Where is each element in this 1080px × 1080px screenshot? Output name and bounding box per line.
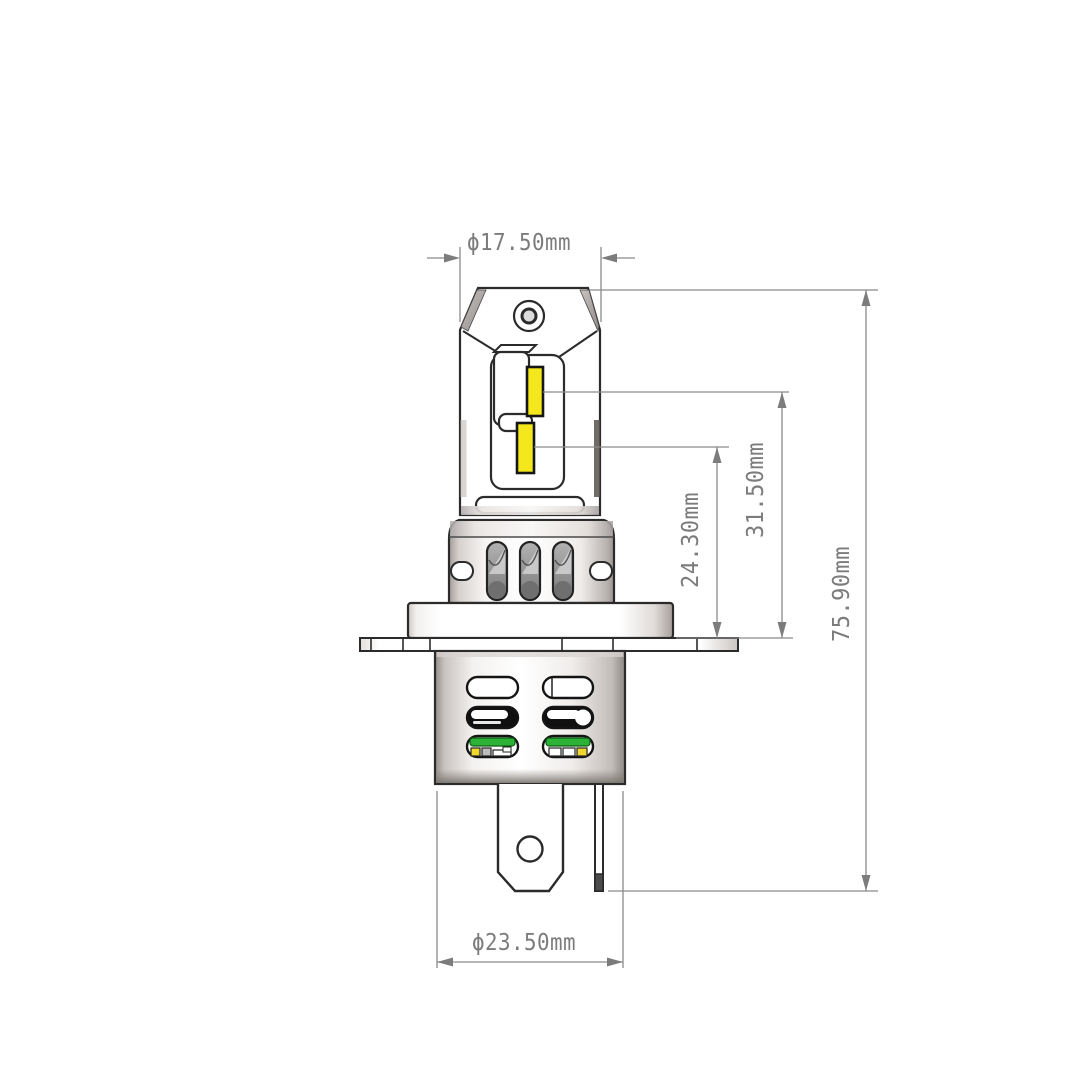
side-pin-tip xyxy=(595,874,603,891)
dim-label-lower-led-height: 24.30mm xyxy=(678,492,704,588)
dim-label-base-diameter: ϕ23.50mm xyxy=(472,930,576,956)
arrow-down xyxy=(862,875,871,891)
vent-slot-r1-right xyxy=(543,677,593,698)
led-chip-lower xyxy=(517,423,534,473)
connector-terminals xyxy=(498,784,603,891)
technical-drawing-page: ϕ17.50mm 75.90mm 31.50mm 24.30mm ϕ23.50m… xyxy=(0,0,1080,1080)
r3-right-pad-white2 xyxy=(563,748,575,756)
arrow-up xyxy=(713,447,722,463)
collar-rim-band xyxy=(450,521,613,537)
r3-right-pcb-green xyxy=(546,738,590,746)
collar-notch-right xyxy=(590,562,612,580)
heatsink-bottom-shade xyxy=(437,769,624,783)
mounting-flange xyxy=(360,603,738,651)
r3-right-pad-yellow xyxy=(577,748,587,756)
heatsink-body xyxy=(435,651,625,784)
arrow-up xyxy=(778,392,787,408)
side-shade-left xyxy=(461,420,467,497)
heatsink-top-shade xyxy=(437,652,624,657)
dim-label-upper-led-height: 31.50mm xyxy=(743,442,769,538)
arrow-down xyxy=(778,622,787,638)
flange-strip xyxy=(360,638,738,651)
bulb-dimension-drawing: ϕ17.50mm 75.90mm 31.50mm 24.30mm ϕ23.50m… xyxy=(0,0,1080,1080)
flange-plate xyxy=(408,603,673,638)
side-shade-right xyxy=(594,420,600,497)
r2-right-end xyxy=(575,710,591,726)
vent-slot-r1-left xyxy=(467,677,518,698)
collar-vent-slots xyxy=(487,542,573,600)
slot-bottom-cap xyxy=(488,581,506,599)
collar-notch-left xyxy=(451,562,473,580)
r3-left-pad-white2 xyxy=(503,747,511,752)
arrow-right xyxy=(607,958,623,967)
r2-left-sliver xyxy=(473,721,501,724)
arrow-left xyxy=(601,254,617,263)
r3-left-pcb-green xyxy=(470,738,515,746)
dim-label-cap-diameter: ϕ17.50mm xyxy=(467,230,571,256)
arrow-up xyxy=(862,290,871,306)
slot-bottom-cap xyxy=(554,581,572,599)
bulb-collar xyxy=(449,520,614,603)
housing-transition-band xyxy=(461,506,599,515)
heatsink-outline xyxy=(435,651,625,784)
slot-bottom-cap xyxy=(521,581,539,599)
terminal-hole xyxy=(518,837,543,862)
r3-right-pad-white xyxy=(549,748,561,756)
bulb-upper-housing xyxy=(460,288,600,515)
screw-hole-inner xyxy=(522,309,536,323)
arrow-left xyxy=(437,958,453,967)
led-chip-upper xyxy=(527,367,543,416)
dim-overall-height: 75.90mm xyxy=(590,290,878,891)
r3-left-pad-yellow xyxy=(471,748,480,756)
dim-label-overall-height: 75.90mm xyxy=(829,546,855,642)
arrow-down xyxy=(713,622,722,638)
arrow-right xyxy=(444,254,460,263)
r3-left-pad-gray xyxy=(482,748,491,756)
r2-left-highlight xyxy=(471,710,508,719)
